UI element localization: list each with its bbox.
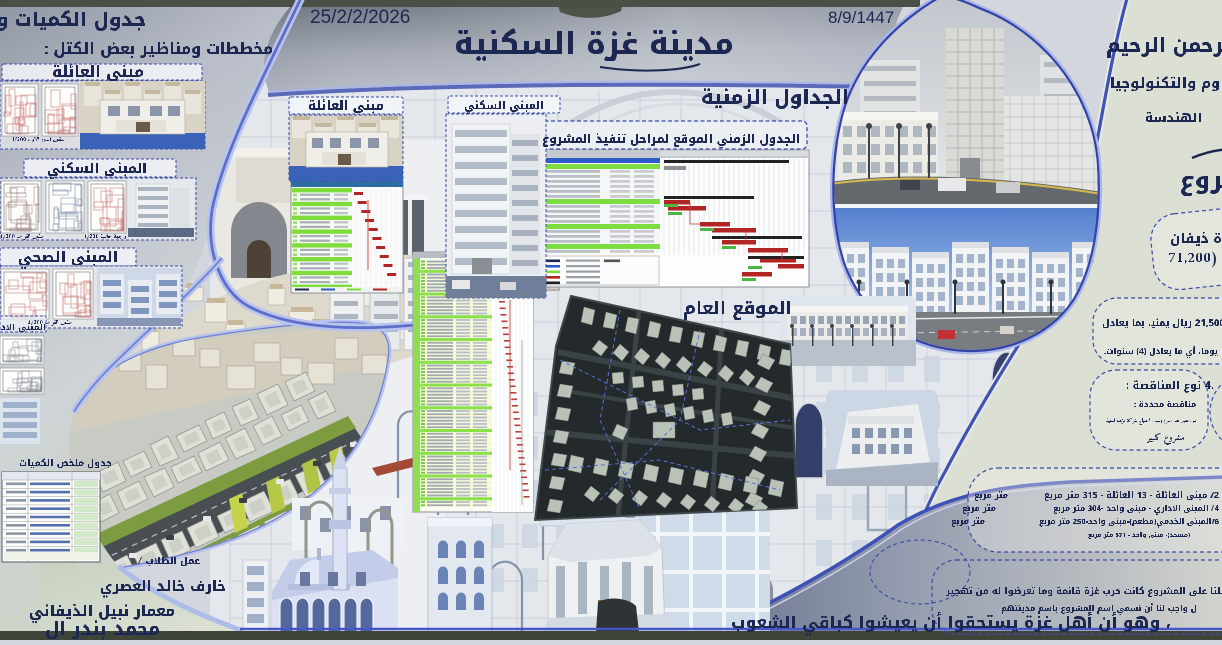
svg-text:8/9/1447: 8/9/1447	[828, 8, 894, 27]
svg-text:25/2/2/2026: 25/2/2/2026	[310, 7, 410, 28]
